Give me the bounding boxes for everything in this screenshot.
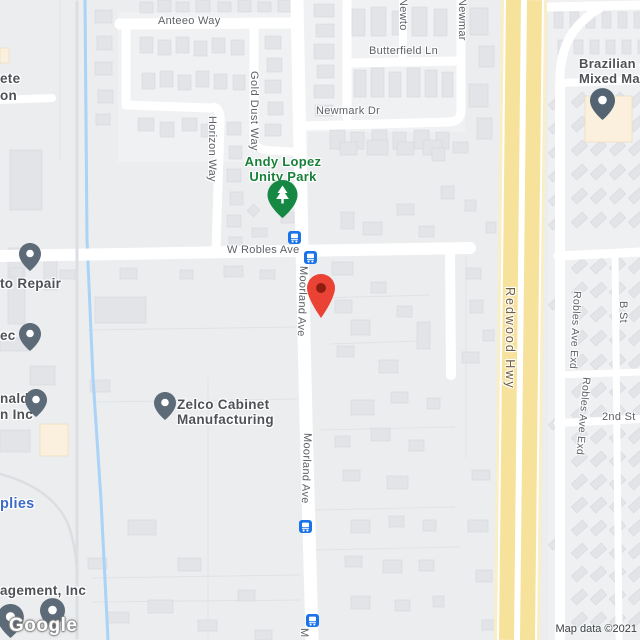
poi-label-line: Zelco Cabinet <box>177 397 269 412</box>
map-base-layer <box>0 0 640 640</box>
street-label-newmark-cut: Newmar <box>456 0 468 41</box>
bus-stop-icon[interactable] <box>306 614 319 627</box>
google-logo[interactable]: Google <box>9 615 77 637</box>
business-pin-icon[interactable] <box>19 323 41 351</box>
street-label-anteeo-way: Anteeo Way <box>158 15 221 27</box>
street-label-gold-dust-way: Gold Dust Way <box>248 71 260 151</box>
business-pin-icon[interactable] <box>19 243 41 271</box>
poi-label-management-inc-cut[interactable]: agement, Inc <box>0 583 86 598</box>
poi-label-line: Andy Lopez <box>245 154 322 169</box>
street-label-newton-cut: Newto <box>397 0 409 31</box>
street-label-butterfield-ln: Butterfield Ln <box>369 45 438 57</box>
bus-stop-icon[interactable] <box>299 520 312 533</box>
poi-label-supplies-cut[interactable]: plies <box>0 496 35 512</box>
street-label-b-st: B St <box>617 301 629 323</box>
poi-label-brazilian-mixed-market[interactable]: Brazilian A Mixed Ma <box>579 57 640 86</box>
street-label-moorland-ave-2: Moorland Ave <box>299 433 313 504</box>
business-pin-icon[interactable] <box>25 389 47 417</box>
location-marker[interactable] <box>307 274 335 318</box>
poi-label-line: Manufacturing <box>177 412 274 427</box>
map-canvas[interactable]: Anteeo Way Butterfield Ln Newmark Dr New… <box>0 0 640 640</box>
bus-stop-icon[interactable] <box>288 231 301 244</box>
map-attribution: Map data ©2021 <box>556 623 638 635</box>
street-label-w-robles-ave: W Robles Ave <box>227 244 299 256</box>
street-label-newmark-dr: Newmark Dr <box>316 105 380 117</box>
poi-label-line: Brazilian A <box>579 56 640 71</box>
business-pin-icon[interactable] <box>154 392 176 420</box>
street-label-2nd-st: 2nd St <box>602 411 636 423</box>
park-tree-pin-icon[interactable] <box>267 180 298 218</box>
poi-label-on-cut[interactable]: on <box>0 88 17 103</box>
poi-label-repair-cut[interactable]: to Repair <box>0 276 61 291</box>
bus-stop-icon[interactable] <box>304 251 317 264</box>
poi-label-zelco-cabinet[interactable]: Zelco Cabinet Manufacturing <box>177 397 274 427</box>
business-pin-icon[interactable] <box>590 88 615 120</box>
poi-label-ete-cut[interactable]: ete <box>0 71 20 86</box>
street-label-horizon-way: Horizon Way <box>206 116 218 182</box>
street-label-redwood-hwy: Redwood Hwy <box>503 287 517 390</box>
poi-label-ec-cut[interactable]: ec <box>0 328 16 343</box>
street-label-moorland-cut: M <box>298 628 310 637</box>
poi-label-line: Mixed Ma <box>579 71 640 86</box>
